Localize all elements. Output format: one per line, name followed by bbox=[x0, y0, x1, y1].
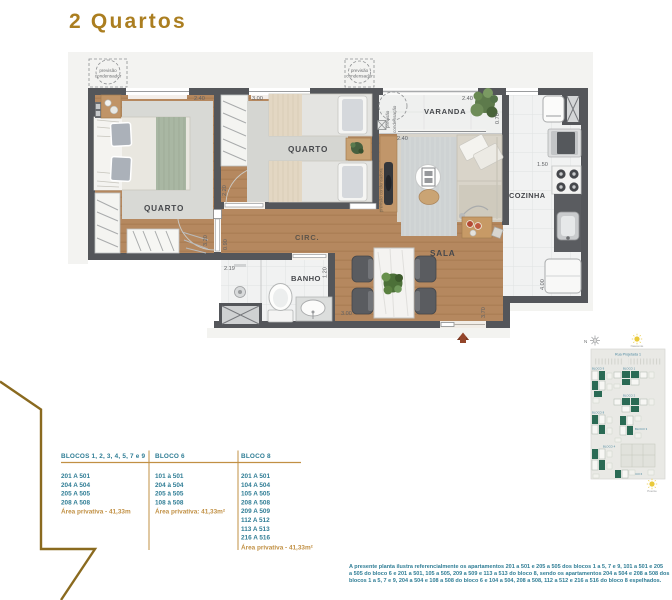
svg-text:BLOCO 8: BLOCO 8 bbox=[592, 411, 605, 415]
svg-text:previsão: previsão bbox=[99, 68, 117, 73]
svg-text:Área privativa - 41,33m: Área privativa - 41,33m bbox=[61, 506, 131, 515]
svg-text:BLOCO 4: BLOCO 4 bbox=[603, 445, 616, 449]
svg-text:1.20: 1.20 bbox=[323, 267, 329, 278]
svg-text:1.50: 1.50 bbox=[537, 162, 548, 168]
svg-text:BLOCOS 1, 2, 3, 4, 5, 7 e 9: BLOCOS 1, 2, 3, 4, 5, 7 e 9 bbox=[61, 453, 145, 460]
svg-text:112 A 512: 112 A 512 bbox=[241, 517, 270, 524]
svg-text:BLOCO 9: BLOCO 9 bbox=[592, 367, 605, 371]
svg-text:blocos 1 a 5, 7 e 9, 204 a 504: blocos 1 a 5, 7 e 9, 204 a 504 e 108 a 5… bbox=[349, 578, 662, 584]
svg-text:BANHO: BANHO bbox=[291, 274, 321, 283]
svg-text:A presente planta ilustra refe: A presente planta ilustra referencialmen… bbox=[349, 564, 663, 570]
svg-text:201 A 501: 201 A 501 bbox=[61, 473, 90, 480]
svg-text:104 A 504: 104 A 504 bbox=[241, 482, 270, 489]
svg-text:Poente: Poente bbox=[647, 489, 657, 493]
svg-text:3.00: 3.00 bbox=[252, 96, 263, 102]
svg-text:216 A 516: 216 A 516 bbox=[241, 535, 270, 542]
svg-text:Área privativa: 41,33m²: Área privativa: 41,33m² bbox=[155, 506, 225, 515]
svg-text:204 à 504: 204 à 504 bbox=[155, 482, 184, 489]
svg-text:N: N bbox=[584, 339, 587, 344]
svg-text:208 A 508: 208 A 508 bbox=[241, 499, 270, 506]
svg-text:204 A 504: 204 A 504 bbox=[61, 482, 90, 489]
svg-text:201 A 501: 201 A 501 bbox=[241, 473, 270, 480]
svg-text:Rua Projetada 1: Rua Projetada 1 bbox=[615, 353, 641, 357]
svg-text:0.90: 0.90 bbox=[223, 239, 229, 250]
svg-text:a 505 do bloco 6 e 201 a 501,: a 505 do bloco 6 e 201 a 501, 105 a 505,… bbox=[349, 571, 669, 577]
svg-text:Nascente: Nascente bbox=[631, 344, 644, 348]
svg-text:BLOCO 3: BLOCO 3 bbox=[635, 427, 648, 431]
svg-text:208 A 508: 208 A 508 bbox=[61, 499, 90, 506]
svg-text:2.40: 2.40 bbox=[194, 96, 205, 102]
svg-text:205 A 505: 205 A 505 bbox=[61, 491, 90, 498]
svg-text:3.00: 3.00 bbox=[341, 311, 352, 317]
svg-text:0.70: 0.70 bbox=[495, 113, 501, 124]
svg-text:2.20: 2.20 bbox=[222, 185, 228, 196]
svg-text:SALA: SALA bbox=[430, 249, 456, 258]
svg-text:2 Quartos: 2 Quartos bbox=[69, 10, 187, 33]
svg-text:COZINHA: COZINHA bbox=[509, 191, 546, 200]
svg-text:condensador: condensador bbox=[346, 74, 373, 79]
svg-text:previsão: previsão bbox=[351, 68, 369, 73]
svg-text:condensador: condensador bbox=[95, 74, 122, 79]
svg-text:BLOCO 2: BLOCO 2 bbox=[623, 394, 636, 398]
svg-text:VARANDA: VARANDA bbox=[424, 107, 466, 116]
svg-text:108 à 508: 108 à 508 bbox=[155, 499, 184, 506]
svg-text:2.19: 2.19 bbox=[224, 266, 235, 272]
svg-text:3.20: 3.20 bbox=[203, 235, 209, 246]
svg-text:209 A 509: 209 A 509 bbox=[241, 508, 270, 515]
svg-text:2.40: 2.40 bbox=[462, 96, 473, 102]
svg-text:101 à 501: 101 à 501 bbox=[155, 473, 184, 480]
svg-text:Área privativa - 41,33m²: Área privativa - 41,33m² bbox=[241, 542, 313, 551]
svg-text:3.70: 3.70 bbox=[481, 307, 487, 318]
svg-text:205 à 505: 205 à 505 bbox=[155, 491, 184, 498]
svg-text:QUARTO: QUARTO bbox=[288, 145, 328, 154]
svg-text:CIRC.: CIRC. bbox=[295, 233, 319, 242]
svg-text:105 A 505: 105 A 505 bbox=[241, 491, 270, 498]
svg-text:2.40: 2.40 bbox=[397, 136, 408, 142]
svg-text:113 A 513: 113 A 513 bbox=[241, 526, 270, 533]
svg-text:QUARTO: QUARTO bbox=[144, 204, 184, 213]
svg-text:4.00: 4.00 bbox=[540, 279, 546, 290]
svg-text:BLOCO 1: BLOCO 1 bbox=[623, 367, 636, 371]
svg-text:BLOCO 6: BLOCO 6 bbox=[155, 453, 185, 460]
svg-text:condensação: condensação bbox=[392, 105, 397, 133]
svg-text:previsão condensadora: previsão condensadora bbox=[379, 168, 384, 212]
svg-text:BLOCO 8: BLOCO 8 bbox=[241, 453, 271, 460]
